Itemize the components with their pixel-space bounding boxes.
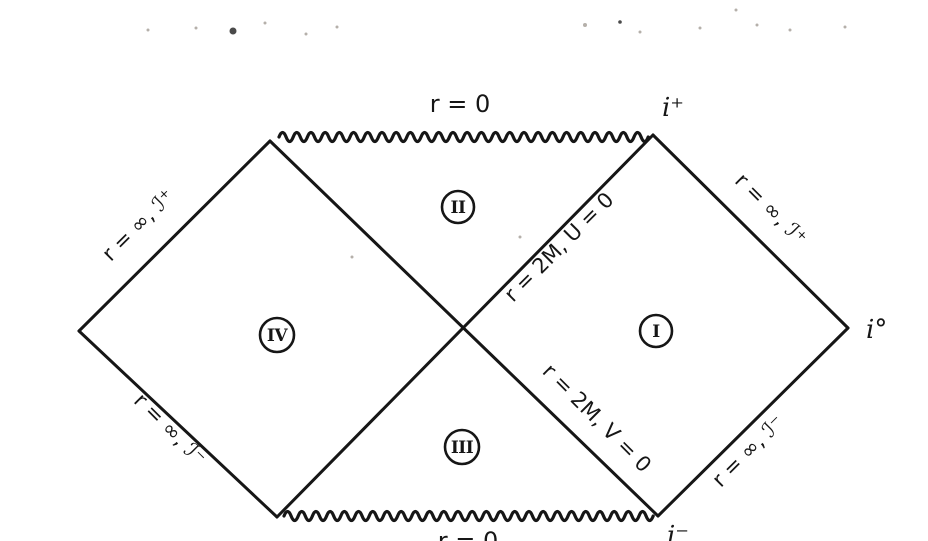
region-IV-badge: IV (260, 318, 294, 352)
singularity-top-label: r = 0 (430, 90, 491, 118)
right-past-null-infinity-edge (658, 328, 848, 516)
region-IV-numeral: IV (267, 326, 288, 346)
region-II-badge: II (442, 191, 474, 223)
left-future-null-infinity-label: r = ∞, ℐ⁺ (97, 184, 179, 266)
singularity-bottom-wavy-line (284, 512, 653, 521)
region-III-badge: III (445, 430, 479, 464)
singularity-top-wavy-line (279, 133, 648, 142)
penrose-diagram: r = 0 r = 0 i⁺ i° i⁻ r = ∞, ℐ⁺ r = ∞, ℐ⁻… (0, 0, 928, 541)
future-timelike-infinity-label: i⁺ (662, 93, 684, 123)
horizon-U-label: r = 2M, U = 0 (500, 188, 619, 307)
right-future-null-infinity-edge (653, 135, 848, 328)
left-future-null-infinity-edge (79, 141, 270, 331)
singularity-bottom-label: r = 0 (438, 527, 499, 541)
penrose-diagram-page: r = 0 r = 0 i⁺ i° i⁻ r = ∞, ℐ⁺ r = ∞, ℐ⁻… (0, 0, 928, 541)
left-past-null-infinity-label: r = ∞, ℐ⁻ (129, 388, 211, 470)
region-I-numeral: I (652, 322, 660, 342)
right-past-null-infinity-label: r = ∞, ℐ⁻ (707, 410, 789, 492)
past-timelike-infinity-label: i⁻ (667, 521, 689, 541)
region-I-badge: I (640, 315, 672, 347)
region-III-numeral: III (451, 438, 474, 458)
right-future-null-infinity-label: r = ∞, ℐ⁺ (730, 168, 812, 250)
region-II-numeral: II (451, 198, 466, 218)
spatial-infinity-label: i° (866, 315, 887, 345)
